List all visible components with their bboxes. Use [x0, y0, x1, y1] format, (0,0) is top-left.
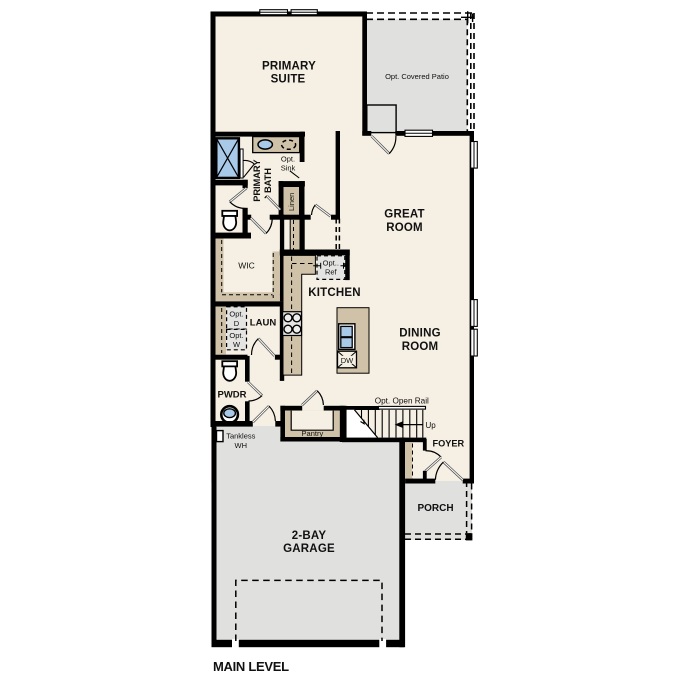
- svg-text:DINING: DINING: [399, 328, 440, 340]
- svg-text:Pantry: Pantry: [302, 429, 324, 438]
- svg-text:ROOM: ROOM: [402, 341, 439, 353]
- svg-text:GARAGE: GARAGE: [283, 543, 335, 555]
- svg-text:Opt.: Opt.: [281, 155, 295, 164]
- svg-text:W: W: [233, 340, 241, 349]
- svg-text:Ref: Ref: [325, 268, 338, 277]
- svg-text:PRIMARY: PRIMARY: [262, 61, 316, 73]
- svg-text:Opt..: Opt..: [323, 258, 339, 267]
- svg-text:WIC: WIC: [238, 261, 255, 271]
- svg-text:Opt.: Opt.: [229, 309, 243, 318]
- svg-text:Opt. Covered Patio: Opt. Covered Patio: [385, 72, 449, 81]
- svg-text:GREAT: GREAT: [384, 209, 424, 221]
- svg-text:SUITE: SUITE: [271, 74, 306, 86]
- svg-text:FOYER: FOYER: [432, 438, 464, 448]
- svg-text:PORCH: PORCH: [417, 503, 453, 514]
- svg-text:D: D: [234, 319, 240, 328]
- svg-text:Opt. Open Rail: Opt. Open Rail: [375, 396, 429, 405]
- svg-text:PRIMARY: PRIMARY: [251, 159, 262, 202]
- svg-text:Sink: Sink: [281, 164, 296, 173]
- svg-text:MAIN LEVEL: MAIN LEVEL: [213, 659, 289, 674]
- svg-text:Linen: Linen: [287, 193, 296, 211]
- svg-text:2-BAY: 2-BAY: [292, 530, 327, 542]
- svg-text:DW: DW: [341, 356, 354, 365]
- svg-text:Opt.: Opt.: [229, 331, 243, 340]
- svg-text:Tankless: Tankless: [226, 432, 255, 441]
- svg-text:WH: WH: [235, 441, 248, 450]
- svg-text:Up: Up: [426, 421, 437, 430]
- svg-text:ROOM: ROOM: [386, 222, 423, 234]
- svg-text:KITCHEN: KITCHEN: [308, 287, 361, 299]
- svg-text:PWDR: PWDR: [217, 390, 246, 401]
- svg-text:BATH: BATH: [262, 168, 273, 193]
- svg-text:LAUN: LAUN: [250, 317, 277, 328]
